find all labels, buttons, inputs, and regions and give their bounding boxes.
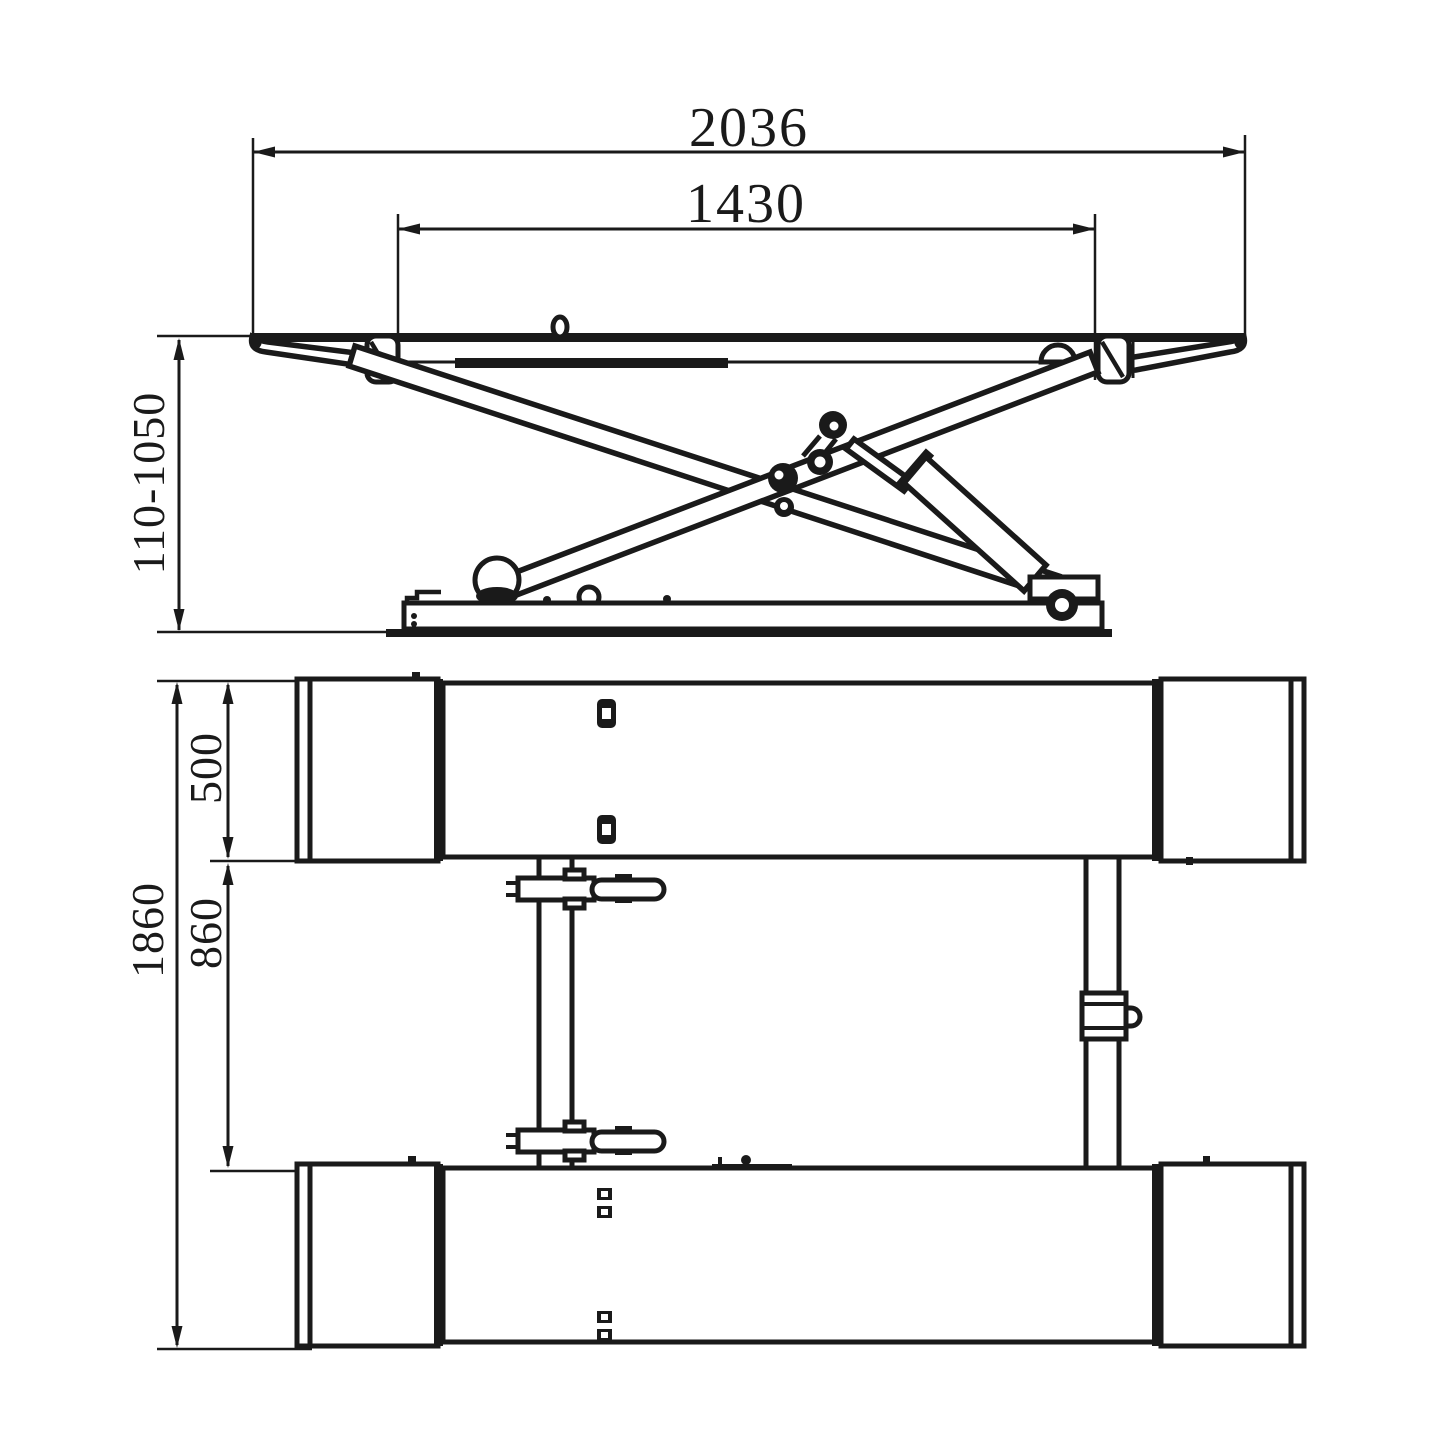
arrow-right-icon [1223,147,1245,158]
end-cap-left [310,679,438,861]
end-cap-right [1161,679,1291,861]
arrow-left-icon [398,224,420,235]
end-cap-right [1161,1164,1291,1346]
bolt-tick [408,1156,416,1164]
arrow-down-icon [223,837,234,859]
arrow-right-icon [1073,224,1095,235]
dim-platform-length: 1430 [398,173,1095,380]
arrow-up-icon [223,682,234,704]
ramp-right [1098,336,1246,382]
dim-platform-width: 500 [180,682,302,861]
dim-height-range-label: 110-1050 [123,392,174,575]
side-view: 2036 1430 110-1050 [123,97,1246,637]
platform-body [443,683,1156,857]
arrow-down-icon [174,609,185,631]
bolt-tick [1203,1156,1210,1164]
rail-coupler [1082,993,1140,1039]
dim-platform-width-label: 500 [180,732,231,804]
deck-hook-icon [553,317,567,337]
end-cap-left [310,1164,438,1346]
arrow-down-icon [223,1146,234,1168]
scissor-mechanism [349,346,1098,607]
rail-clamp-upper [506,870,664,908]
dim-inner-gap: 860 [180,863,297,1171]
arrow-up-icon [172,682,183,704]
bolt-tick [1186,857,1193,865]
arrow-up-icon [223,863,234,885]
arrow-down-icon [172,1326,183,1348]
dim-height-range: 110-1050 [123,336,404,632]
dim-platform-length-label: 1430 [686,173,806,235]
coupler-tab [1126,1008,1140,1026]
plan-top-platform [297,672,1304,865]
deck-reinforcement [455,358,728,368]
coupler-sleeve [1082,993,1126,1039]
scissor-arm-outer [349,346,1059,597]
ground-line [386,629,1112,637]
end-strip-right [1291,679,1304,861]
dim-overall-width-label: 1860 [122,882,173,978]
plan-bottom-platform [297,1156,1304,1346]
pivot-pin-center [768,463,798,493]
arrow-left-icon [253,147,275,158]
dim-overall-length-label: 2036 [689,97,809,159]
drawing-page: 2036 1430 110-1050 [0,0,1445,1445]
platform-body [443,1168,1156,1342]
arrow-up-icon [174,338,185,360]
rail-clamp-lower [506,1122,664,1160]
end-strip-right [1291,1164,1304,1346]
clamp-pin [592,880,664,899]
platform-slot [597,815,616,844]
bolt-tick [412,672,420,680]
base-rail [404,603,1102,629]
scissor-lift-drawing: 2036 1430 110-1050 [0,0,1445,1445]
platform-slot [597,699,616,728]
plan-view: 1860 500 860 [122,672,1304,1349]
clamp-pin [592,1132,664,1151]
dim-inner-gap-label: 860 [180,897,231,969]
